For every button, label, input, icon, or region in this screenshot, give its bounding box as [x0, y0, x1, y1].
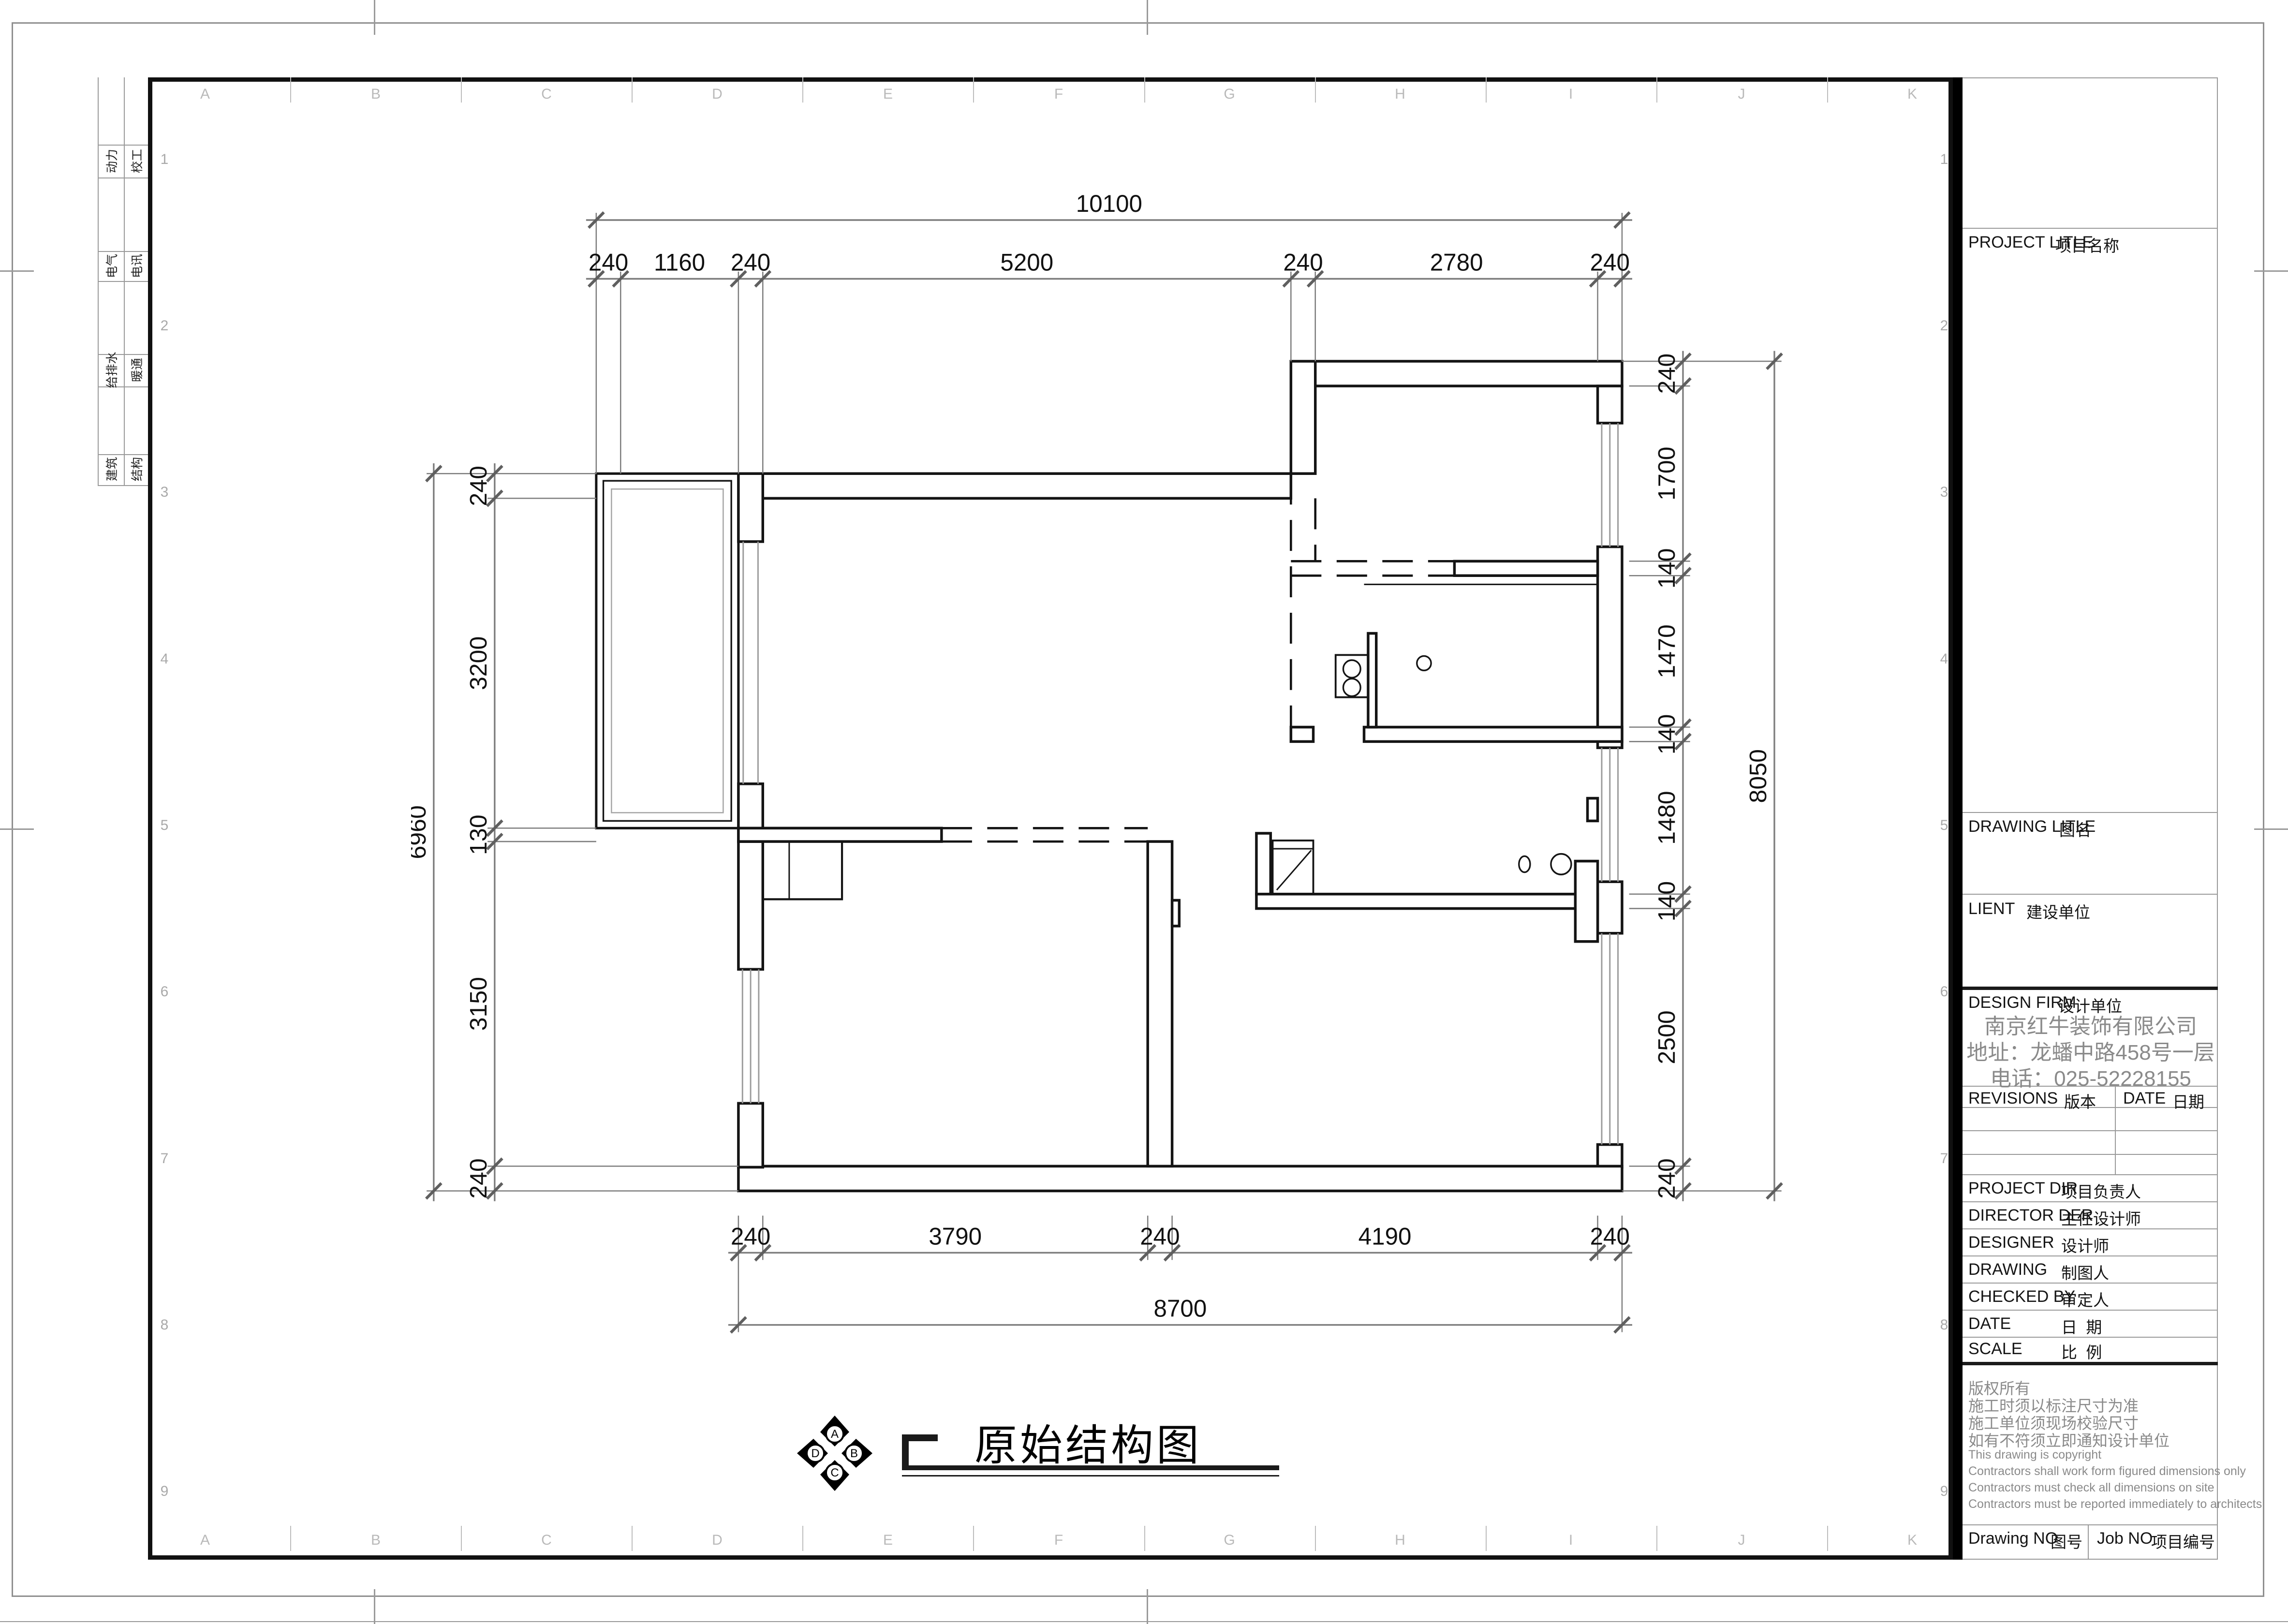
compass-letter-d: D [811, 1447, 819, 1460]
staff-label-cn: 比 例 [2061, 1340, 2102, 1363]
balcony [596, 473, 738, 828]
project-title-label-cn: 项目名称 [2055, 233, 2119, 256]
trim-mark [1147, 1589, 1148, 1624]
dim-right: 1480 [1653, 791, 1680, 844]
dim-bottom: 240 [1140, 1223, 1180, 1250]
dim-right: 240 [1653, 1158, 1680, 1199]
revisions-label-en: REVISIONS [1968, 1089, 2058, 1108]
grid-letter-top: D [712, 86, 723, 103]
grid-letter-bottom: K [1907, 1532, 1917, 1549]
drawing-no-label-cn: 图号 [2051, 1529, 2082, 1552]
grid-letter-bottom: F [1054, 1532, 1063, 1549]
staff-label-cn: 制图人 [2061, 1260, 2109, 1284]
copyright-en-line: Contractors must be reported immediately… [1968, 1497, 2262, 1511]
staff-label-en: CHECKED BY [1968, 1287, 2075, 1306]
floor-plan: 10100 240 1160 240 5200 240 2780 240 240… [411, 184, 1799, 1403]
dim-left: 240 [465, 466, 492, 506]
grid-number-left: 2 [161, 318, 169, 334]
dim-top: 240 [731, 249, 770, 276]
dim-left: 3200 [465, 636, 492, 690]
grid-letter-bottom: C [541, 1532, 552, 1549]
dim-top: 240 [1590, 249, 1630, 276]
drawing-title-label-cn: 图名 [2059, 817, 2091, 841]
grid-number-left: 5 [161, 817, 169, 834]
title-underline-thick [902, 1465, 1279, 1470]
grid-number-right: 6 [1940, 984, 1948, 1000]
grid-number-left: 7 [161, 1151, 169, 1167]
grid-letter-top: F [1054, 86, 1063, 103]
trim-mark [1147, 0, 1148, 35]
grid-letter-bottom: A [200, 1532, 210, 1549]
grid-letter-top: E [883, 86, 893, 103]
dim-top: 240 [589, 249, 628, 276]
grid-letter-bottom: J [1738, 1532, 1745, 1549]
grid-letter-top: G [1224, 86, 1235, 103]
dim-bottom: 3790 [929, 1223, 982, 1250]
discipline-label: 暖通 [128, 358, 145, 382]
trim-mark [0, 270, 34, 272]
discipline-label: 电气 [103, 254, 120, 278]
grid-number-left: 6 [161, 984, 169, 1000]
grid-number-left: 9 [161, 1483, 169, 1500]
dim-right: 140 [1653, 548, 1680, 589]
sheet-bottom-edge [0, 1621, 2288, 1622]
trim-mark [374, 0, 375, 35]
dim-top: 2780 [1430, 249, 1483, 276]
dim-bottom: 240 [1590, 1223, 1630, 1250]
grid-letter-top: J [1738, 86, 1745, 103]
discipline-label: 建筑 [103, 457, 120, 481]
dim-bottom: 240 [731, 1223, 770, 1250]
compass-letter-c: C [830, 1466, 839, 1479]
date-col-label-cn: 日期 [2172, 1089, 2204, 1112]
discipline-label: 给排水 [103, 352, 120, 388]
dim-right: 140 [1653, 881, 1680, 922]
copyright-en-line: Contractors must check all dimensions on… [1968, 1481, 2214, 1495]
dim-top: 5200 [1000, 249, 1053, 276]
dim-right: 240 [1653, 354, 1680, 394]
grid-letter-bottom: B [371, 1532, 381, 1549]
trim-mark [374, 1589, 375, 1624]
grid-letter-top: A [200, 86, 210, 103]
title-underline-thin [902, 1475, 1279, 1476]
dim-right-overall: 8050 [1744, 749, 1771, 803]
dim-right: 1700 [1653, 447, 1680, 501]
dim-left-overall: 6960 [411, 805, 431, 859]
client-label-cn: 建设单位 [2026, 900, 2090, 923]
grid-number-right: 7 [1940, 1151, 1948, 1167]
staff-label-cn: 主任设计师 [2061, 1206, 2141, 1229]
staff-label-en: DATE [1968, 1314, 2011, 1333]
trim-mark [2254, 270, 2288, 272]
staff-label-cn: 日 期 [2061, 1314, 2102, 1338]
grid-number-left: 3 [161, 484, 169, 501]
dim-right: 2500 [1653, 1010, 1680, 1064]
drawing-no-label-en: Drawing NO [1968, 1529, 2058, 1548]
dim-left: 3150 [465, 977, 492, 1031]
title-corner-mark [902, 1434, 938, 1441]
dim-bottom: 4190 [1358, 1223, 1412, 1250]
dim-top: 240 [1283, 249, 1323, 276]
grid-number-right: 4 [1940, 651, 1948, 667]
staff-label-en: DRAWING [1968, 1260, 2047, 1279]
drawing-title-text: 原始结构图 [974, 1411, 1202, 1473]
grid-letter-bottom: D [712, 1532, 723, 1549]
dim-right: 140 [1653, 714, 1680, 755]
revisions-label-cn: 版本 [2064, 1089, 2096, 1112]
dim-left: 130 [465, 814, 492, 855]
staff-label-cn: 审定人 [2061, 1287, 2109, 1311]
windows [742, 423, 1618, 1145]
trim-mark [2254, 828, 2288, 830]
discipline-label: 校工 [128, 149, 145, 173]
grid-letter-top: C [541, 86, 552, 103]
discipline-label: 结构 [128, 457, 145, 481]
dim-right: 1470 [1653, 624, 1680, 678]
grid-number-right: 1 [1940, 151, 1948, 168]
staff-label-cn: 项目负责人 [2061, 1179, 2141, 1202]
date-col-label-en: DATE [2123, 1089, 2166, 1108]
grid-number-right: 5 [1940, 817, 1948, 834]
grid-number-right: 3 [1940, 484, 1948, 501]
client-label-en: LIENT [1968, 900, 2015, 918]
grid-letter-bottom: H [1395, 1532, 1405, 1549]
grid-number-left: 1 [161, 151, 169, 168]
walls [738, 361, 1622, 1191]
job-no-label-cn: 项目编号 [2151, 1529, 2215, 1552]
grid-number-right: 8 [1940, 1317, 1948, 1333]
firm-phone: 电话：025-52228155 [1963, 1061, 2219, 1092]
dim-left: 240 [465, 1158, 492, 1199]
grid-letter-top: I [1569, 86, 1573, 103]
drawing-sheet: A B C D E F G H I J K A B C D E F G H I … [0, 0, 2288, 1624]
dim-top-overall: 10100 [1076, 190, 1142, 217]
grid-number-right: 2 [1940, 318, 1948, 334]
grid-number-left: 4 [161, 651, 169, 667]
grid-letter-bottom: I [1569, 1532, 1573, 1549]
dim-bottom-overall: 8700 [1154, 1295, 1207, 1322]
job-no-label-en: Job NO [2097, 1529, 2153, 1548]
staff-label-en: DESIGNER [1968, 1233, 2054, 1252]
discipline-label: 电讯 [128, 254, 145, 278]
grid-number-left: 8 [161, 1317, 169, 1333]
grid-letter-top: B [371, 86, 381, 103]
grid-letter-bottom: E [883, 1532, 893, 1549]
staff-label-en: SCALE [1968, 1340, 2022, 1358]
discipline-label: 动力 [103, 149, 120, 173]
compass-letter-a: A [831, 1428, 839, 1441]
grid-number-right: 9 [1940, 1483, 1948, 1500]
grid-letter-bottom: G [1224, 1532, 1235, 1549]
staff-label-cn: 设计师 [2061, 1233, 2109, 1256]
copyright-en-line: Contractors shall work form figured dime… [1968, 1464, 2246, 1478]
binding-bar [1953, 77, 1963, 1560]
grid-letter-top: H [1395, 86, 1405, 103]
compass-logo: A B C D [796, 1415, 873, 1492]
compass-letter-b: B [850, 1447, 858, 1460]
trim-mark [0, 828, 34, 830]
dim-top: 1160 [654, 249, 705, 276]
dimension-texts: 10100 240 1160 240 5200 240 2780 240 240… [411, 190, 1771, 1322]
grid-letter-top: K [1907, 86, 1917, 103]
copyright-en-line: This drawing is copyright [1968, 1448, 2101, 1462]
